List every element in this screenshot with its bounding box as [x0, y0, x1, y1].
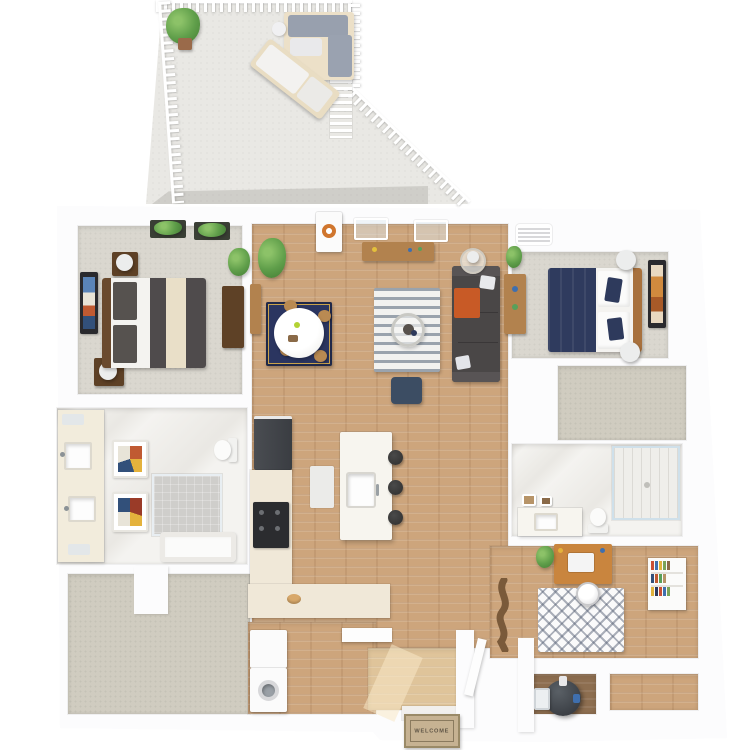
patio-plant-pot: [178, 38, 192, 50]
bedroom1-wall-art: [80, 272, 98, 334]
room-entry-closet: [610, 674, 698, 710]
dryer: [250, 630, 287, 668]
bed2-accent-pillow-2: [607, 317, 625, 341]
door-wreath: [322, 224, 336, 238]
dining-table: [274, 308, 324, 358]
bath1-towel-2: [68, 544, 90, 555]
bedroom1-dresser: [222, 286, 244, 348]
bath1-shower: [152, 474, 222, 536]
bath2-small-art-2: [540, 496, 552, 506]
bath2-toilet: [586, 508, 610, 536]
dining-chair-3: [314, 350, 327, 362]
kitchen-counter-bottom: [248, 584, 390, 618]
counter-bowl: [287, 594, 301, 604]
bedroom2-desk: [504, 274, 526, 334]
bar-stool-2: [388, 480, 403, 495]
bath1-vanity: [58, 410, 104, 562]
office-desk: [554, 544, 612, 584]
kitchen-floor-mat: [310, 466, 334, 508]
driftwood-decor: [492, 578, 516, 652]
floor-plan-stage: WELCOME: [0, 0, 750, 750]
living-floor-lamp: [467, 251, 479, 263]
bed1-pillow-top: [113, 282, 137, 320]
closet-1-wall-notch: [134, 566, 168, 614]
bookshelf-row-1: [651, 561, 683, 574]
laptop: [568, 553, 594, 572]
media-console: [362, 242, 434, 261]
bath1-mosaic-art-1: [112, 440, 148, 478]
bath1-towel-1: [62, 414, 84, 425]
living-window-1: [354, 218, 388, 240]
bar-stool-1: [388, 450, 403, 465]
water-heater: [545, 680, 581, 716]
sectional-ottoman: [272, 22, 286, 36]
bedroom2-bed: [548, 268, 642, 352]
refrigerator: [254, 416, 292, 470]
bath2-glass-shower: [612, 446, 680, 520]
bath2-sink: [534, 513, 558, 531]
sectional-seat-cushion: [290, 38, 322, 56]
island-faucet: [376, 484, 379, 496]
shower-drain: [644, 482, 650, 488]
bookshelf-row-2: [651, 574, 683, 587]
sofa-pillow-1: [479, 275, 496, 290]
water-heater-pipe: [559, 676, 567, 686]
bed1-pillow-bottom: [113, 325, 137, 363]
washer-door: [258, 680, 279, 701]
navy-pouf: [391, 377, 422, 404]
dining-sideboard: [250, 284, 261, 334]
sofa-pillow-2: [455, 355, 471, 370]
bath1-faucet-1: [60, 452, 65, 457]
bath1-sink-1: [64, 442, 92, 470]
bath2-small-art-1: [522, 494, 536, 506]
bed2-navy-blanket: [548, 268, 596, 352]
sectional-side-cushions: [328, 35, 352, 77]
bedroom1-lamp-top: [116, 254, 133, 271]
washer: [250, 668, 287, 712]
room-walk-in-closet-2: [558, 366, 686, 440]
range-oven: [253, 502, 289, 548]
bath1-mosaic-art-2: [112, 492, 148, 532]
island-sink: [346, 472, 376, 508]
office-chair: [576, 582, 600, 606]
sectional-back-cushions: [288, 15, 348, 37]
bath1-toilet: [214, 436, 238, 464]
bath1-faucet-2: [64, 506, 69, 511]
bed1-headboard: [102, 278, 111, 368]
bath1-tub: [160, 532, 236, 562]
bed2-headboard: [633, 268, 642, 352]
electrical-panel: [534, 688, 550, 710]
living-window-2: [414, 220, 448, 242]
bar-stool-3: [388, 510, 403, 525]
laundry-floating-shelf: [342, 628, 392, 642]
living-sofa: [452, 266, 500, 382]
sofa-orange-throw: [454, 288, 480, 318]
welcome-mat-border: WELCOME: [410, 720, 455, 742]
bedroom2-wall-art: [648, 260, 666, 328]
coffee-table: [391, 313, 425, 347]
sofa-armrest-bottom: [452, 372, 500, 382]
bed1-blanket-cream-stripe: [166, 278, 186, 368]
bath1-sink-2: [68, 496, 96, 522]
bedroom2-lamp-bottom: [620, 342, 640, 362]
bookshelf-row-3: [651, 587, 683, 600]
welcome-mat: WELCOME: [404, 714, 460, 748]
bedroom2-ceiling-vent: [518, 226, 550, 243]
entry-vestibule-wall-right: [518, 638, 534, 732]
office-bookshelf: [648, 558, 686, 610]
welcome-mat-text: WELCOME: [415, 728, 450, 734]
bedroom1-bed: [102, 278, 206, 368]
bedroom2-lamp-top: [616, 250, 636, 270]
